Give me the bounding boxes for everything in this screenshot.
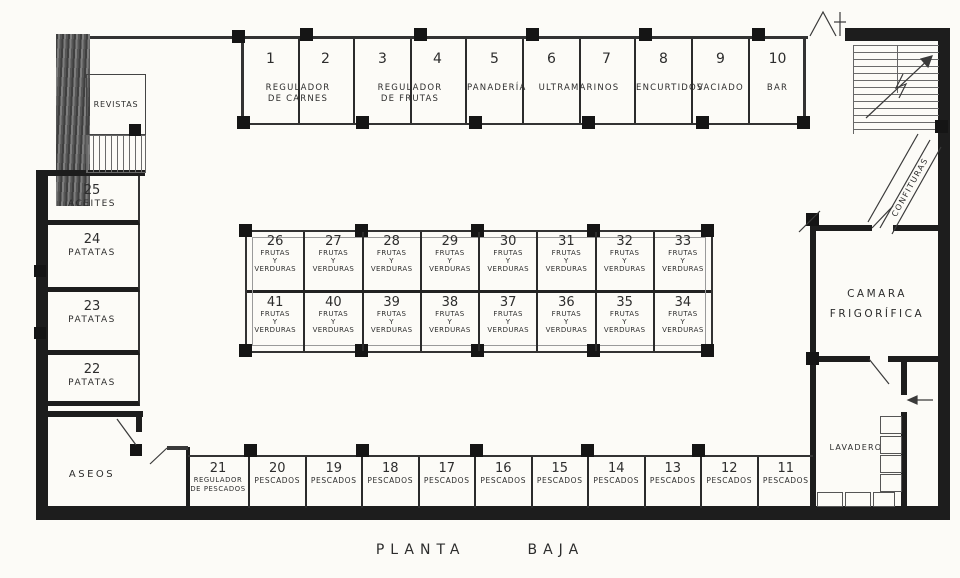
stall-group: 8 ENCURTIDOS [636,39,693,123]
stall-number: 27 [305,234,361,249]
column-post [237,116,250,129]
stall-number: 39 [364,295,420,310]
floor-plan: 12 REGULADOR DE CARNES 34 REGULADOR DE F… [0,0,960,578]
market-stall: 39 FRUTAS Y VERDURAS [364,293,422,351]
market-stall: 14 PESCADOS [589,457,646,508]
market-stall: 19 PESCADOS [307,457,364,508]
column-post [129,124,141,136]
island-row-1: 26 FRUTAS Y VERDURAS 27 FRUTAS Y VERDURA… [247,232,711,293]
stall-number: 21 [188,457,248,476]
stall-label: PANADERÍA [467,83,522,94]
wall-lavaderos-partition-a [901,362,907,395]
column-post [34,327,46,339]
lavadero-basin [817,492,843,507]
stall-number: 38 [422,295,478,310]
stall-numbers: 34 [355,39,465,67]
room-label: ACEITES [46,198,138,211]
stall-group: 34 REGULADOR DE FRUTAS [355,39,467,123]
lavadero-basin [880,436,902,454]
stall-number: 33 [655,234,711,249]
staircase-right [853,45,939,134]
stall-label: ENCURTIDOS [636,83,691,94]
column-post [806,352,819,365]
market-stall: 34 FRUTAS Y VERDURAS [655,293,711,351]
wall-camara-top-a [816,225,872,231]
market-stall: 20 PESCADOS [250,457,307,508]
stall-numbers: 10 [750,39,805,67]
door-swing [869,359,889,384]
wall-camara-bottom-b [888,356,940,362]
top-stall-band: 12 REGULADOR DE CARNES 34 REGULADOR DE F… [243,39,805,125]
market-stall: 28 FRUTAS Y VERDURAS [364,232,422,290]
stall-label: REGULADOR DE CARNES [243,83,353,105]
door-swing [150,448,167,464]
room-number: 22 [46,362,138,377]
stall-number: 4 [410,51,465,67]
stall-number: 35 [597,295,653,310]
stall-number: 40 [305,295,361,310]
market-stall: 18 PESCADOS [363,457,420,508]
stall-group: 10 BAR [750,39,805,123]
stall-numbers: 9 [693,39,748,67]
wall-bottom [36,506,950,520]
drawing-title: PLANTA BAJA [0,542,960,558]
central-stall-island: 26 FRUTAS Y VERDURAS 27 FRUTAS Y VERDURA… [245,230,713,353]
room-number: 25 [46,183,138,198]
confituras-ramp-label: CONFITURAS [890,156,930,218]
wall-camara-top-b [893,225,940,231]
wall-camara-bottom-a [816,356,870,362]
market-stall: 21 REGULADOR DE PESCADOS [188,457,250,508]
stall-number: 2 [298,51,353,67]
stall-group: 5 PANADERÍA [467,39,524,123]
stall-number: 1 [243,51,298,67]
stall-group: 12 REGULADOR DE CARNES [243,39,355,123]
wall-right [938,28,950,520]
stall-label: REGULADOR DE FRUTAS [355,83,465,105]
stall-numbers: 12 [243,39,353,67]
lavadero-basin [880,416,902,434]
market-stall: 33 FRUTAS Y VERDURAS [655,232,711,290]
island-row-2: 41 FRUTAS Y VERDURAS 40 FRUTAS Y VERDURA… [247,293,711,351]
stall-number: 32 [597,234,653,249]
room-camara-frigorifica: CAMARA FRIGORÍFICA [818,284,936,324]
market-stall: 38 FRUTAS Y VERDURAS [422,293,480,351]
room-label: PATATAS [46,247,138,260]
market-stall: 11 PESCADOS [759,457,814,508]
column-post [244,444,257,457]
stall-number: 29 [422,234,478,249]
room-number: 24 [46,232,138,247]
stall-number: 15 [533,457,588,476]
stall-number: 7 [579,51,634,67]
lavadero-basin [880,455,902,473]
lavadero-basin [873,492,895,507]
stall-number: 17 [420,457,475,476]
column-post [356,444,369,457]
column-post [806,213,819,226]
column-post [582,116,595,129]
stall-number: 41 [247,295,303,310]
stall-number: 37 [480,295,536,310]
stall-number: 12 [702,457,757,476]
storage-room: 24 PATATAS [46,225,140,292]
column-post [581,444,594,457]
stall-group: 67 ULTRAMARINOS [524,39,636,123]
column-post [130,444,142,456]
market-stall: 41 FRUTAS Y VERDURAS [247,293,305,351]
market-stall: 29 FRUTAS Y VERDURAS [422,232,480,290]
market-stall: 13 PESCADOS [646,457,703,508]
title-word: BAJA [528,542,585,558]
market-stall: 40 FRUTAS Y VERDURAS [305,293,363,351]
market-stall: 26 FRUTAS Y VERDURAS [247,232,305,290]
column-post [356,116,369,129]
stall-number: 26 [247,234,303,249]
stall-number: 34 [655,295,711,310]
stall-number: 3 [355,51,410,67]
lavadero-basin [845,492,871,507]
door-swing [872,206,893,228]
stall-number: 30 [480,234,536,249]
market-stall: 37 FRUTAS Y VERDURAS [480,293,538,351]
pescados-stalls: 20 PESCADOS 19 PESCADOS 18 PESCADOS 17 P… [250,457,813,508]
ramp-line [892,147,941,234]
stall-numbers: 5 [467,39,522,67]
column-post [692,444,705,457]
market-stall: 35 FRUTAS Y VERDURAS [597,293,655,351]
stall-numbers: 67 [524,39,634,67]
stall-number: 5 [467,51,522,67]
storage-room: 23 PATATAS [46,292,140,355]
ramp-line [880,140,930,228]
market-stall: 31 FRUTAS Y VERDURAS [538,232,596,290]
stall-group: 9 VACIADO [693,39,750,123]
room-aseos: ASEOS [46,417,138,558]
wall-top-right [845,28,950,41]
left-room-stack: 25 ACEITES 24 PATATAS 23 PATATAS 22 PATA… [46,176,140,406]
room-label: PATATAS [46,314,138,327]
stall-number: 20 [250,457,305,476]
stall-number: 16 [476,457,531,476]
title-word: PLANTA [376,542,466,558]
stall-number: 36 [538,295,594,310]
stall-numbers: 8 [636,39,691,67]
column-post [34,265,46,277]
stall-number: 14 [589,457,644,476]
room-label: PATATAS [46,377,138,390]
stall-number: 31 [538,234,594,249]
stall-label: ULTRAMARINOS [524,83,634,94]
column-post [469,116,482,129]
room-number: 23 [46,299,138,314]
bottom-stall-band: 21 REGULADOR DE PESCADOS 20 PESCADOS 19 … [188,455,813,508]
stair-rail [897,45,898,93]
market-stall: 36 FRUTAS Y VERDURAS [538,293,596,351]
column-post [470,444,483,457]
market-stall: 15 PESCADOS [533,457,590,508]
stall-number: 18 [363,457,418,476]
market-stall: 16 PESCADOS [476,457,533,508]
stall-number: 10 [750,51,805,67]
storage-room: 25 ACEITES [46,176,140,225]
column-post [935,120,948,133]
column-post [797,116,810,129]
stall-number: 6 [524,51,579,67]
column-post [696,116,709,129]
storage-room: 22 PATATAS [46,355,140,406]
stall-label: BAR [750,83,805,94]
market-stall: 30 FRUTAS Y VERDURAS [480,232,538,290]
stall-number: 28 [364,234,420,249]
stall-number: 8 [636,51,691,67]
market-stall: 27 FRUTAS Y VERDURAS [305,232,363,290]
stall-number: 19 [307,457,362,476]
market-stall: 17 PESCADOS [420,457,477,508]
market-stall: 12 PESCADOS [702,457,759,508]
stall-number: 13 [646,457,701,476]
lavadero-basin [880,474,902,492]
arrow-head [908,396,917,404]
staircase-left [86,135,146,173]
stall-label: VACIADO [693,83,748,94]
stall-number: 11 [759,457,814,476]
market-stall: 32 FRUTAS Y VERDURAS [597,232,655,290]
double-door [810,12,836,36]
stall-number: 9 [693,51,748,67]
